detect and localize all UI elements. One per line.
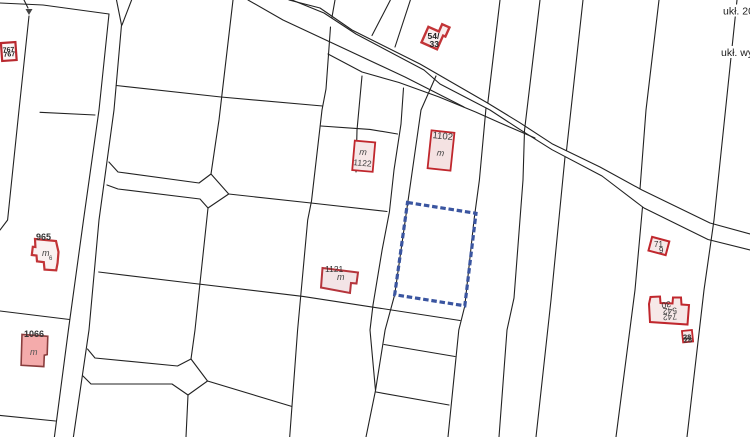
- svg-text:1102: 1102: [432, 130, 453, 143]
- svg-text:1122: 1122: [353, 157, 372, 169]
- svg-text:965: 965: [36, 232, 51, 242]
- svg-text:9: 9: [659, 246, 664, 255]
- svg-text:m: m: [30, 347, 38, 357]
- svg-text:1066: 1066: [24, 329, 44, 339]
- svg-text:742: 742: [662, 312, 677, 323]
- svg-text:m: m: [359, 147, 368, 158]
- svg-text:33: 33: [430, 39, 440, 49]
- svg-text:ukł. 2000: ukł. 2000: [723, 6, 750, 18]
- svg-text:ukł. wy: ukł. wy: [721, 47, 750, 59]
- svg-text:28: 28: [684, 336, 692, 345]
- svg-text:m: m: [337, 272, 345, 282]
- svg-text:767: 767: [3, 51, 15, 59]
